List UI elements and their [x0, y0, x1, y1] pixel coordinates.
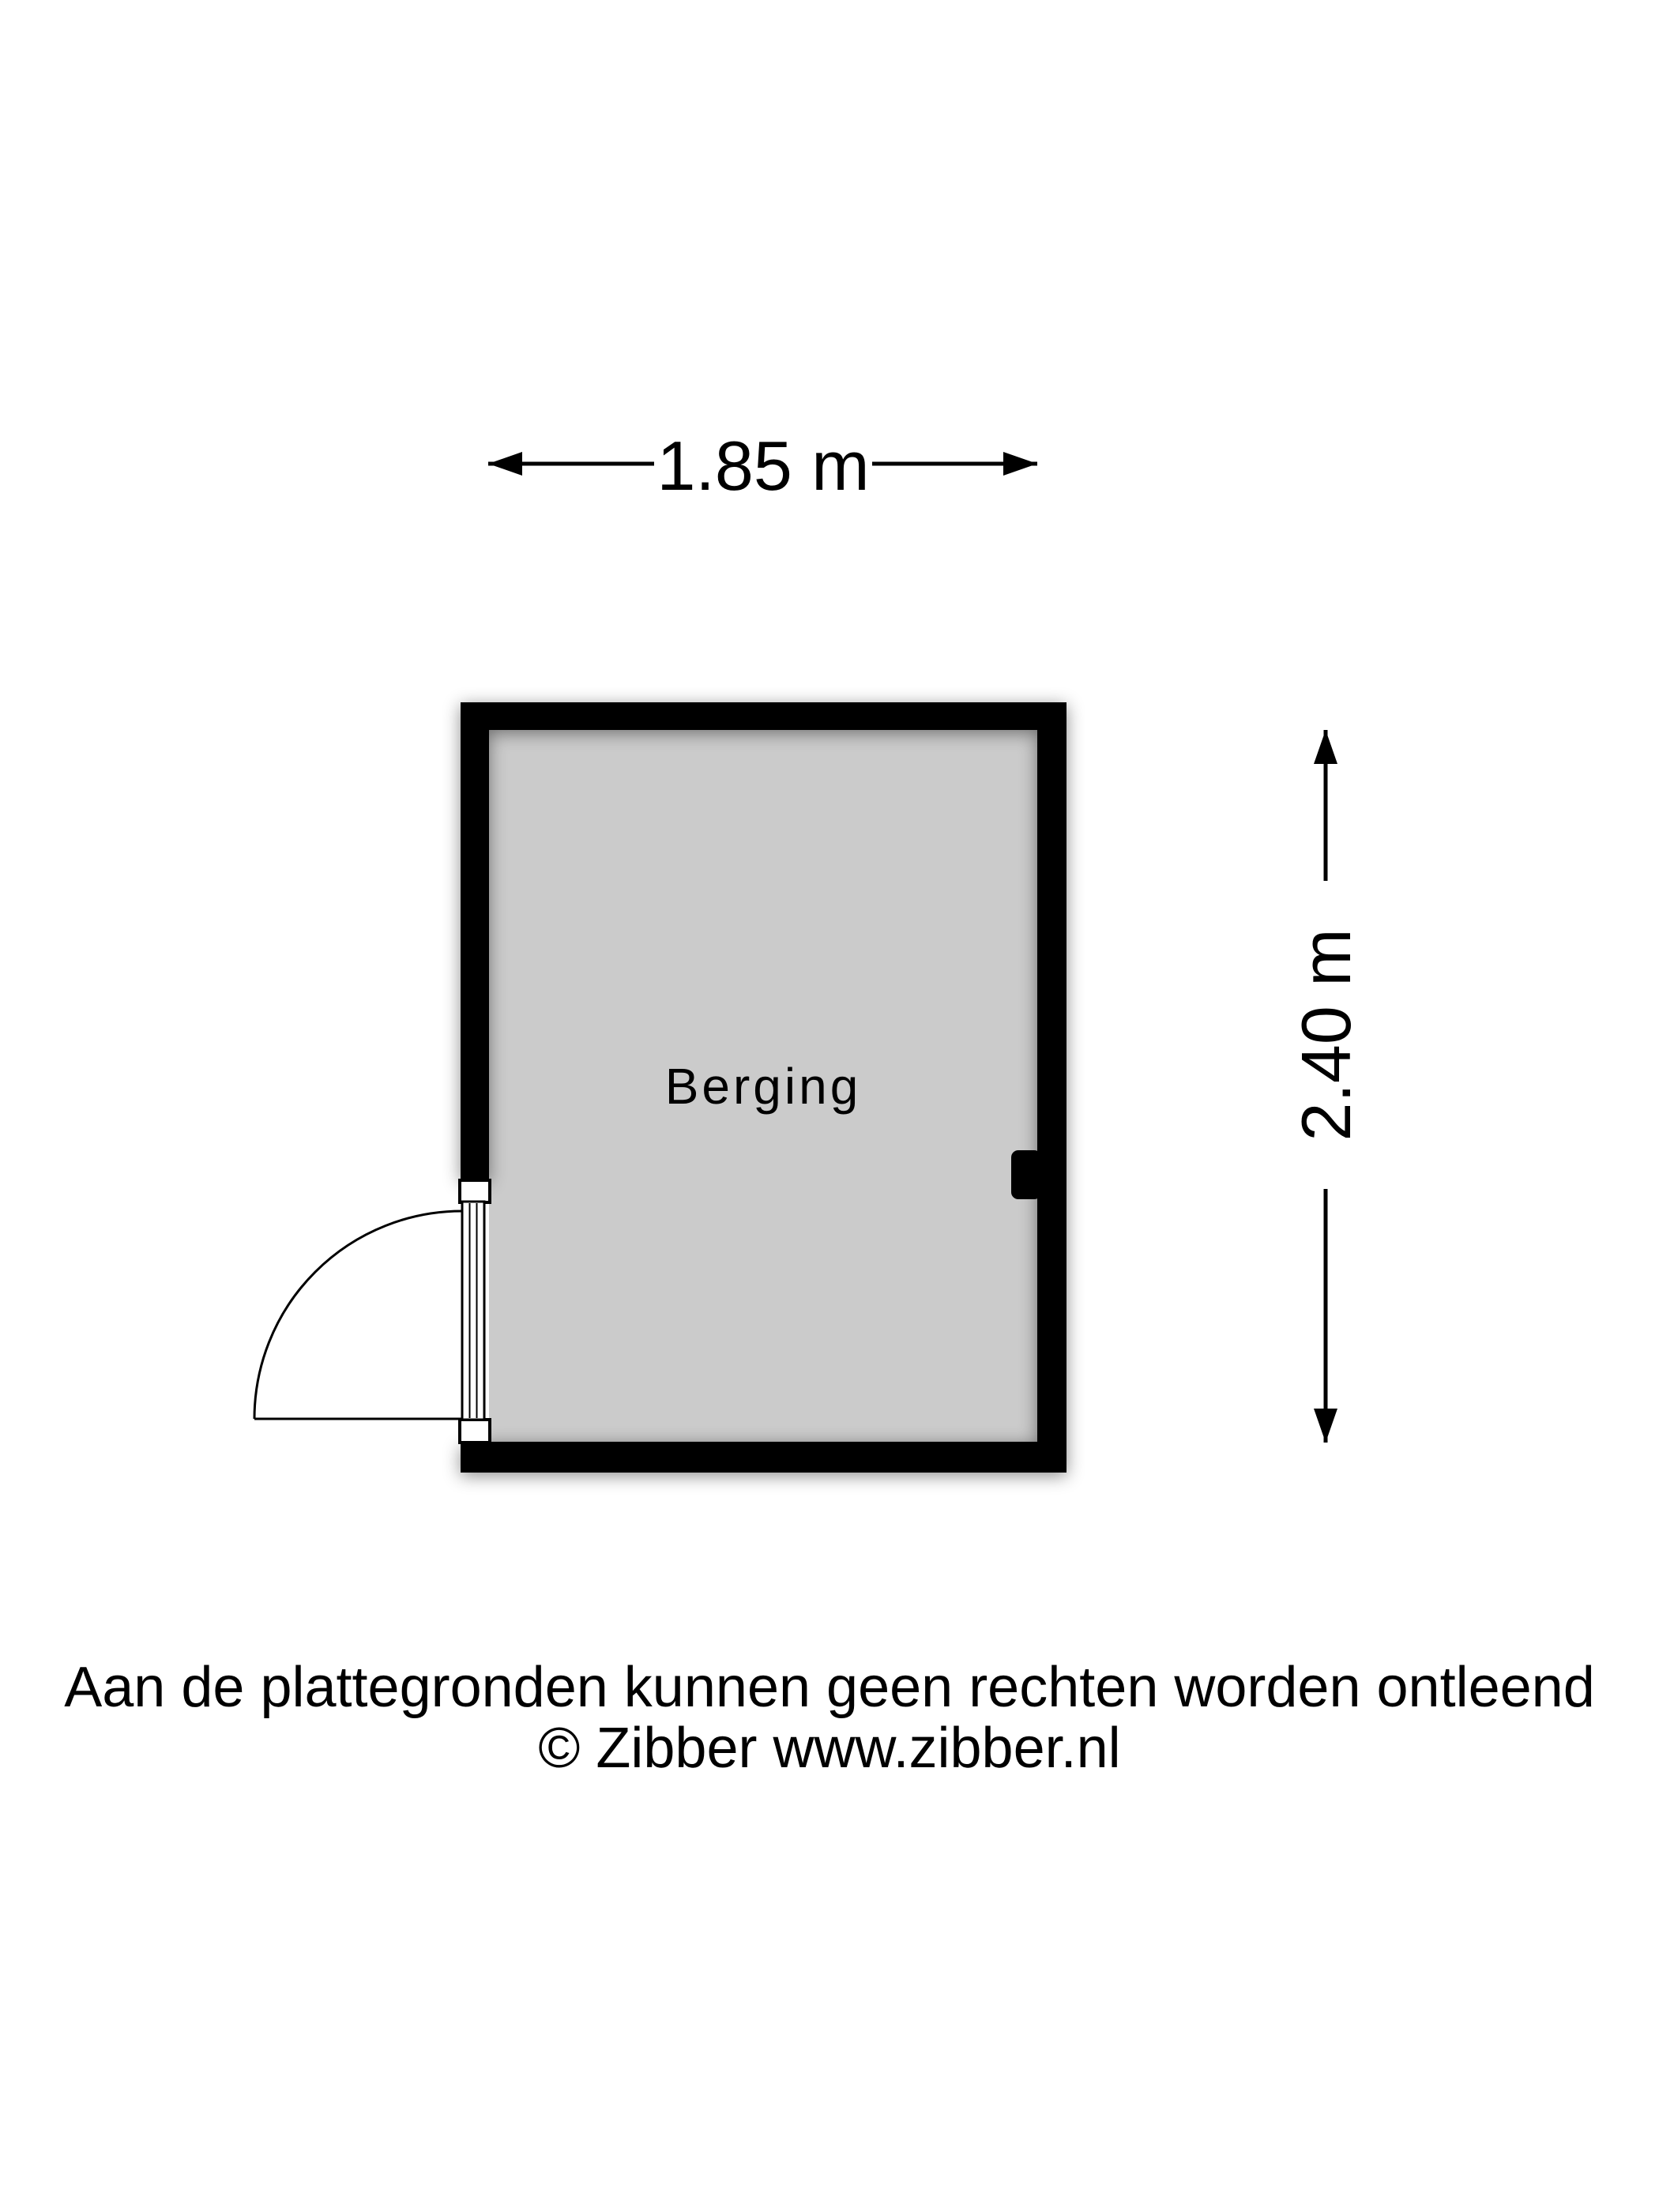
arrow-down-icon: [1314, 1409, 1337, 1443]
disclaimer-text: Aan de plattegronden kunnen geen rechten…: [64, 1656, 1595, 1719]
copyright-text: © Zibber www.zibber.nl: [538, 1717, 1120, 1780]
room-label: Berging: [665, 1058, 862, 1115]
arrow-up-icon: [1314, 730, 1337, 764]
floorplan-canvas: Berging 1.85 m 2.40 m Aan de plattegrond…: [0, 0, 1659, 2212]
height-dimension: 2.40 m: [1287, 730, 1365, 1443]
arrow-right-icon: [1003, 452, 1037, 476]
width-dimension: 1.85 m: [488, 427, 1037, 505]
floorplan-page: Berging 1.85 m 2.40 m Aan de plattegrond…: [0, 0, 1659, 2212]
door-swing-arc: [254, 1211, 462, 1419]
room: Berging: [254, 702, 1066, 1473]
door-frame-bottom: [460, 1420, 490, 1443]
width-dimension-label: 1.85 m: [656, 427, 869, 505]
door-frame-top: [460, 1180, 490, 1202]
arrow-left-icon: [488, 452, 522, 476]
height-dimension-label: 2.40 m: [1287, 928, 1365, 1141]
footer: Aan de plattegronden kunnen geen rechten…: [64, 1656, 1595, 1780]
door-leaf: [462, 1202, 484, 1420]
wall-notch: [1011, 1150, 1041, 1199]
